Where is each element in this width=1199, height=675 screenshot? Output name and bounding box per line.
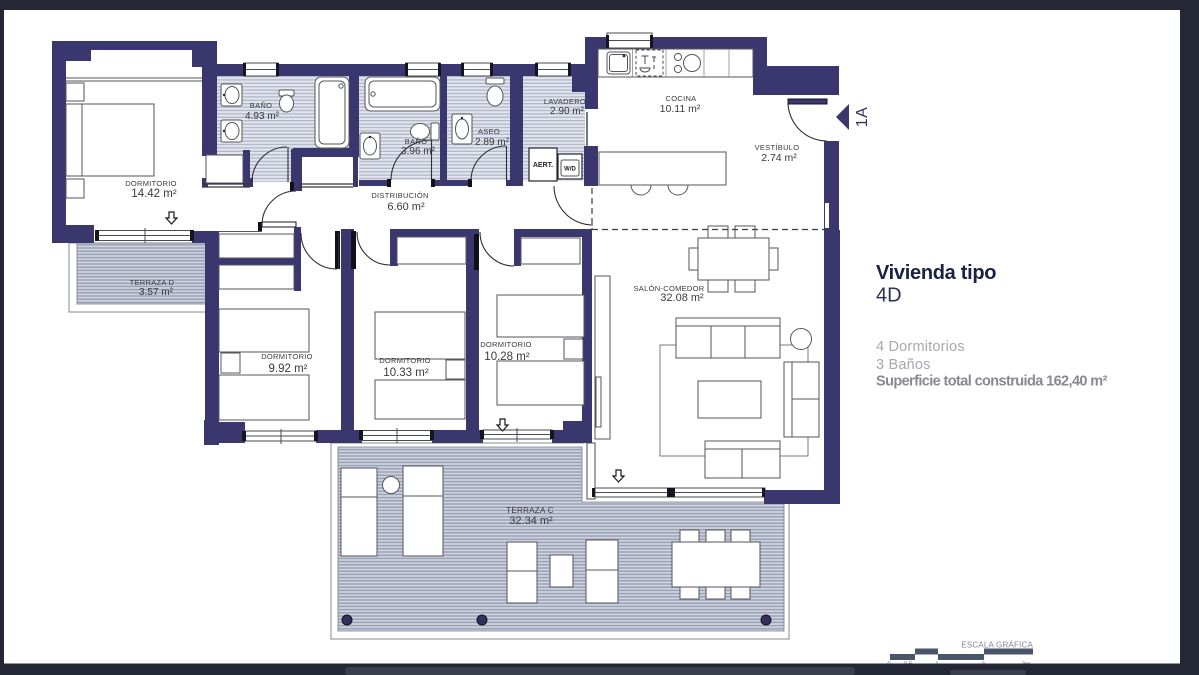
svg-text:6.60 m²: 6.60 m² [387,201,425,213]
svg-text:32.34 m²: 32.34 m² [509,515,553,527]
svg-text:ASEO: ASEO [478,127,500,136]
svg-text:3.96 m²: 3.96 m² [401,146,436,157]
svg-text:32.08 m²: 32.08 m² [660,292,704,304]
svg-text:9.92 m²: 9.92 m² [269,363,308,375]
svg-text:DORMITORIO: DORMITORIO [379,356,431,365]
svg-text:VESTÍBULO: VESTÍBULO [755,143,800,152]
svg-text:2.90 m²: 2.90 m² [550,106,585,117]
svg-text:BAÑO: BAÑO [250,101,272,110]
svg-text:4 Dormitorios: 4 Dormitorios [876,339,965,355]
svg-text:2.89 m²: 2.89 m² [475,137,510,148]
svg-text:Vivienda tipo: Vivienda tipo [876,262,996,284]
svg-text:10.11 m²: 10.11 m² [660,103,701,115]
svg-text:TERRAZA C: TERRAZA C [506,506,554,515]
svg-text:DORMITORIO: DORMITORIO [261,352,313,361]
svg-text:10.33 m²: 10.33 m² [383,367,429,379]
svg-text:4.93 m²: 4.93 m² [245,111,280,122]
svg-text:2.74 m²: 2.74 m² [761,152,797,164]
svg-text:W/D: W/D [564,167,576,173]
svg-text:Superficie total construida 16: Superficie total construida 162,40 m² [876,374,1108,390]
svg-text:3 Baños: 3 Baños [876,357,931,373]
svg-text:TERRAZA D: TERRAZA D [130,278,175,287]
svg-text:AERT.: AERT. [533,162,553,169]
svg-text:BAÑO: BAÑO [405,137,427,146]
svg-text:DORMITORIO: DORMITORIO [480,340,532,349]
svg-text:1A: 1A [854,107,871,128]
svg-text:3.57 m²: 3.57 m² [139,287,174,298]
svg-text:10.28 m²: 10.28 m² [484,351,530,363]
svg-text:DORMITORIO: DORMITORIO [125,179,177,188]
svg-text:COCINA: COCINA [666,94,697,103]
svg-text:14.42 m²: 14.42 m² [131,188,177,200]
svg-text:DISTRIBUCIÓN: DISTRIBUCIÓN [371,191,428,200]
svg-text:LAVADERO: LAVADERO [544,97,586,106]
svg-text:4D: 4D [876,285,902,307]
svg-text:ESCALA GRÁFICA: ESCALA GRÁFICA [961,641,1033,650]
